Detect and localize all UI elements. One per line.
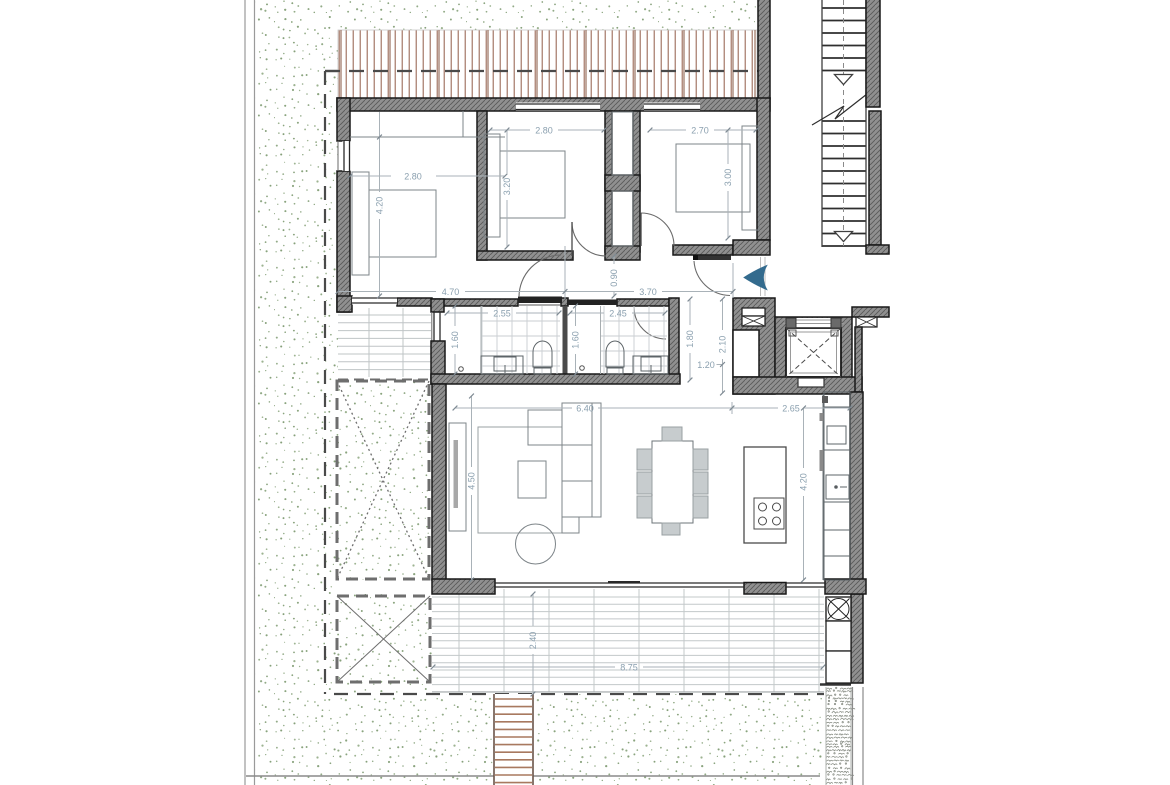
svg-text:2.65: 2.65	[782, 404, 800, 414]
svg-text:8.75: 8.75	[620, 663, 638, 673]
svg-text:1.60: 1.60	[571, 331, 581, 349]
svg-text:1.60: 1.60	[450, 331, 460, 349]
svg-text:2.10: 2.10	[718, 336, 728, 354]
svg-text:2.40: 2.40	[528, 632, 538, 650]
svg-text:2.80: 2.80	[535, 126, 553, 136]
svg-text:4.20: 4.20	[799, 473, 809, 491]
svg-text:4.20: 4.20	[375, 197, 385, 215]
svg-text:1.80: 1.80	[685, 330, 695, 348]
svg-text:4.50: 4.50	[467, 472, 477, 490]
svg-text:6.40: 6.40	[576, 404, 594, 414]
svg-text:3.70: 3.70	[639, 287, 657, 297]
svg-text:4.70: 4.70	[442, 287, 460, 297]
svg-text:2.80: 2.80	[404, 172, 422, 182]
svg-text:3.20: 3.20	[502, 178, 512, 196]
svg-text:2.45: 2.45	[609, 309, 627, 319]
svg-text:2.55: 2.55	[493, 309, 511, 319]
svg-text:2.70: 2.70	[691, 126, 709, 136]
svg-text:0.90: 0.90	[609, 269, 619, 287]
svg-text:1.20: 1.20	[697, 360, 715, 370]
svg-text:3.00: 3.00	[723, 169, 733, 187]
